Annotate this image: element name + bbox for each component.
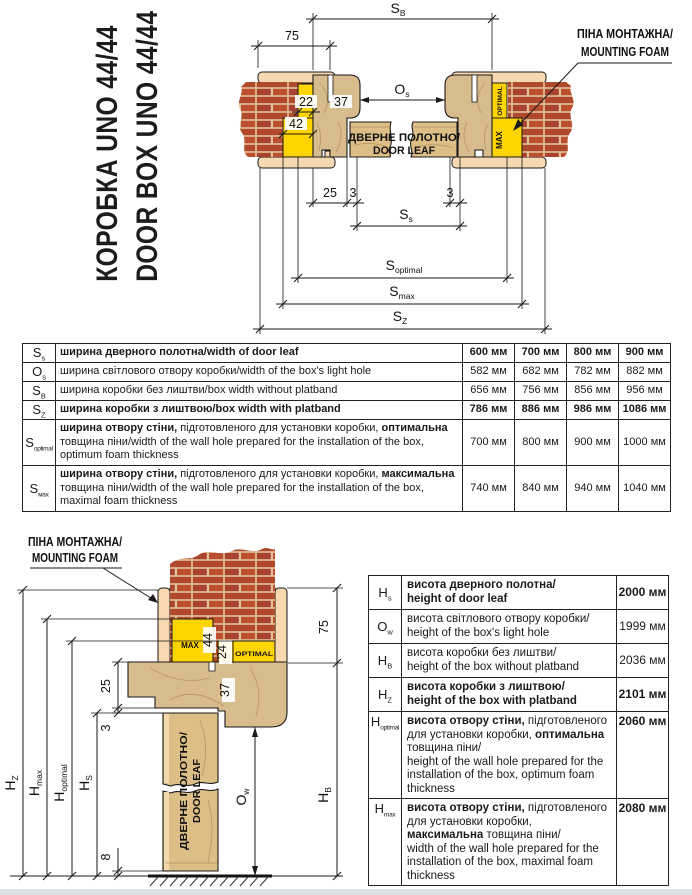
catalog-page: КОРОБКА UNO 44/44 DOOR BOX UNO 44/44	[0, 0, 692, 895]
door-leaf-top	[163, 713, 218, 786]
value-cell: 786 мм	[463, 401, 515, 420]
table-row: Hoptimal висота отвору стіни, підготовле…	[369, 712, 669, 799]
value-cell: 886 мм	[515, 401, 567, 420]
symbol-cell: Hmax	[369, 799, 402, 886]
door-leaf-bottom	[163, 789, 218, 871]
door-leaf-label-ua: ДВЕРНЕ ПОЛОТНО/	[348, 132, 460, 144]
description-cell: ширина коробки з лиштвою/box width with …	[56, 401, 463, 420]
table-row: Ow висота світлового отвору коробки/ hei…	[369, 610, 669, 644]
value-cell: 1040 мм	[619, 466, 671, 512]
dim-label-hmax: Hmax	[26, 769, 44, 796]
foam-callout-en: MOUNTING FOAM	[32, 550, 118, 565]
dim-label-3-right: 3	[447, 186, 454, 200]
symbol-cell: SZ	[23, 401, 56, 420]
value-cell: 782 мм	[567, 363, 619, 382]
table-row: Ss ширина дверного полотна/width of door…	[23, 344, 671, 363]
value-cell: 2000 мм	[617, 576, 669, 610]
dim-label-75v: 75	[317, 620, 331, 634]
description-cell: ширина світлового отвору коробки/width o…	[56, 363, 463, 382]
description-cell: висота світлового отвору коробки/ height…	[402, 610, 617, 644]
symbol-cell: Ss	[23, 344, 56, 363]
dim-label-75: 75	[285, 29, 299, 43]
symbol-cell: HB	[369, 644, 402, 678]
dim-label-ss: Ss	[399, 206, 413, 224]
dim-label-soptimal: Soptimal	[386, 257, 423, 275]
value-cell: 682 мм	[515, 363, 567, 382]
symbol-cell: Os	[23, 363, 56, 382]
value-cell: 900 мм	[619, 344, 671, 363]
description-cell: ширина отвору стіни, підготовленого для …	[56, 420, 463, 466]
symbol-cell: Hoptimal	[369, 712, 402, 799]
table-row: HZ висота коробки з лиштвою/ height of t…	[369, 678, 669, 712]
dim-label-hoptimal: Hoptimal	[51, 764, 69, 802]
dim-label-3v: 3	[99, 724, 113, 731]
description-cell: висота коробки з лиштвою/ height of the …	[402, 678, 617, 712]
table-row: Hs висота дверного полотна/ height of do…	[369, 576, 669, 610]
door-leaf-label-en: DOOR LEAF	[373, 145, 435, 157]
door-leaf-label-ua: ДВЕРНЕ ПОЛОТНО/	[179, 732, 190, 850]
dim-label-24: 24	[215, 645, 229, 659]
dim-label-smax: Smax	[389, 283, 415, 301]
dim-label-os: Os	[394, 81, 409, 99]
foam-callout-ua: ПІНА МОНТАЖНА/	[28, 534, 122, 549]
table-row: Os ширина світлового отвору коробки/widt…	[23, 363, 671, 382]
value-cell: 900 мм	[567, 420, 619, 466]
dim-label-8: 8	[99, 853, 113, 860]
dim-label-hz: HZ	[2, 775, 20, 790]
value-cell: 956 мм	[619, 382, 671, 401]
platband-left-bottom	[258, 157, 335, 168]
value-cell: 2080 мм	[617, 799, 669, 886]
description-cell: висота дверного полотна/ height of door …	[402, 576, 617, 610]
foam-callout-en: MOUNTING FOAM	[581, 44, 669, 59]
symbol-cell: Ow	[369, 610, 402, 644]
table-row: SB ширина коробки без лиштви/box width w…	[23, 382, 671, 401]
platband-right-bottom	[452, 157, 546, 168]
value-cell: 882 мм	[619, 363, 671, 382]
dim-label-42: 42	[289, 117, 303, 131]
dim-label-hb: HB	[315, 787, 333, 803]
value-cell: 1086 мм	[619, 401, 671, 420]
value-cell: 2101 мм	[617, 678, 669, 712]
foam-callout-ua: ПІНА МОНТАЖНА/	[577, 26, 673, 41]
description-cell: ширина отвору стіни, підготовленого для …	[56, 466, 463, 512]
drawing-top: ДВЕРНЕ ПОЛОТНО/ DOOR LEAF OPTIMAL MAX SB…	[239, 0, 673, 334]
symbol-cell: HZ	[369, 678, 402, 712]
foam-max-label: MAX	[495, 130, 504, 148]
dim-label-44: 44	[201, 633, 215, 647]
value-cell: 582 мм	[463, 363, 515, 382]
table-row: SZ ширина коробки з лиштвою/box width wi…	[23, 401, 671, 420]
symbol-cell: SB	[23, 382, 56, 401]
value-cell: 800 мм	[567, 344, 619, 363]
description-cell: ширина дверного полотна/width of door le…	[56, 344, 463, 363]
value-cell: 600 мм	[463, 344, 515, 363]
dim-label-25: 25	[323, 186, 337, 200]
door-leaf-label-en: DOOR LEAF	[192, 759, 203, 823]
value-cell: 800 мм	[515, 420, 567, 466]
value-cell: 740 мм	[463, 466, 515, 512]
table-row: Sмах ширина отвору стіни, підготовленого…	[23, 466, 671, 512]
jamb-groove	[472, 75, 477, 102]
dim-label-25v: 25	[99, 679, 113, 693]
foam-optimal-label: OPTIMAL	[497, 86, 504, 115]
value-cell: 700 мм	[463, 420, 515, 466]
description-cell: висота коробки без лиштви/ height of the…	[402, 644, 617, 678]
width-table: Ss ширина дверного полотна/width of door…	[22, 343, 671, 512]
table-row: HB висота коробки без лиштви/ height of …	[369, 644, 669, 678]
dim-label-sz: SZ	[393, 308, 408, 326]
value-cell: 656 мм	[463, 382, 515, 401]
value-cell: 840 мм	[515, 466, 567, 512]
dim-label-3-left: 3	[350, 186, 357, 200]
dim-label-sb: SB	[390, 0, 405, 18]
foam-optimal-label: OPTIMAL	[235, 651, 273, 658]
height-table: Hs висота дверного полотна/ height of do…	[368, 575, 669, 886]
dim-label-ow: Ow	[233, 788, 251, 806]
page-edge-strip	[0, 889, 692, 895]
drawing-bottom: MAX OPTIMAL 44 24 37 ДВЕРНЕ ПОЛОТНО/ DOO…	[2, 534, 343, 886]
dim-label-22: 22	[299, 95, 313, 109]
symbol-cell: Sмах	[23, 466, 56, 512]
value-cell: 2036 мм	[617, 644, 669, 678]
value-cell: 700 мм	[515, 344, 567, 363]
foam-max-label: MAX	[181, 641, 199, 650]
symbol-cell: Soptimal	[23, 420, 56, 466]
value-cell: 986 мм	[567, 401, 619, 420]
value-cell: 1000 мм	[619, 420, 671, 466]
symbol-cell: Hs	[369, 576, 402, 610]
value-cell: 756 мм	[515, 382, 567, 401]
description-cell: ширина коробки без лиштви/box width with…	[56, 382, 463, 401]
head-groove	[209, 662, 215, 671]
description-cell: висота отвору стіни, підготовленого для …	[402, 712, 617, 799]
dim-label-37v: 37	[218, 683, 232, 697]
table-row: Hmax висота отвору стіни, підготовленого…	[369, 799, 669, 886]
value-cell: 1999 мм	[617, 610, 669, 644]
value-cell: 940 мм	[567, 466, 619, 512]
table-row: Soptimal ширина отвору стіни, підготовле…	[23, 420, 671, 466]
floor-hatch	[150, 877, 268, 886]
dim-label-hs: HS	[76, 775, 94, 791]
dim-label-37: 37	[334, 95, 348, 109]
value-cell: 856 мм	[567, 382, 619, 401]
description-cell: висота отвору стіни, підготовленого для …	[402, 799, 617, 886]
value-cell: 2060 мм	[617, 712, 669, 799]
